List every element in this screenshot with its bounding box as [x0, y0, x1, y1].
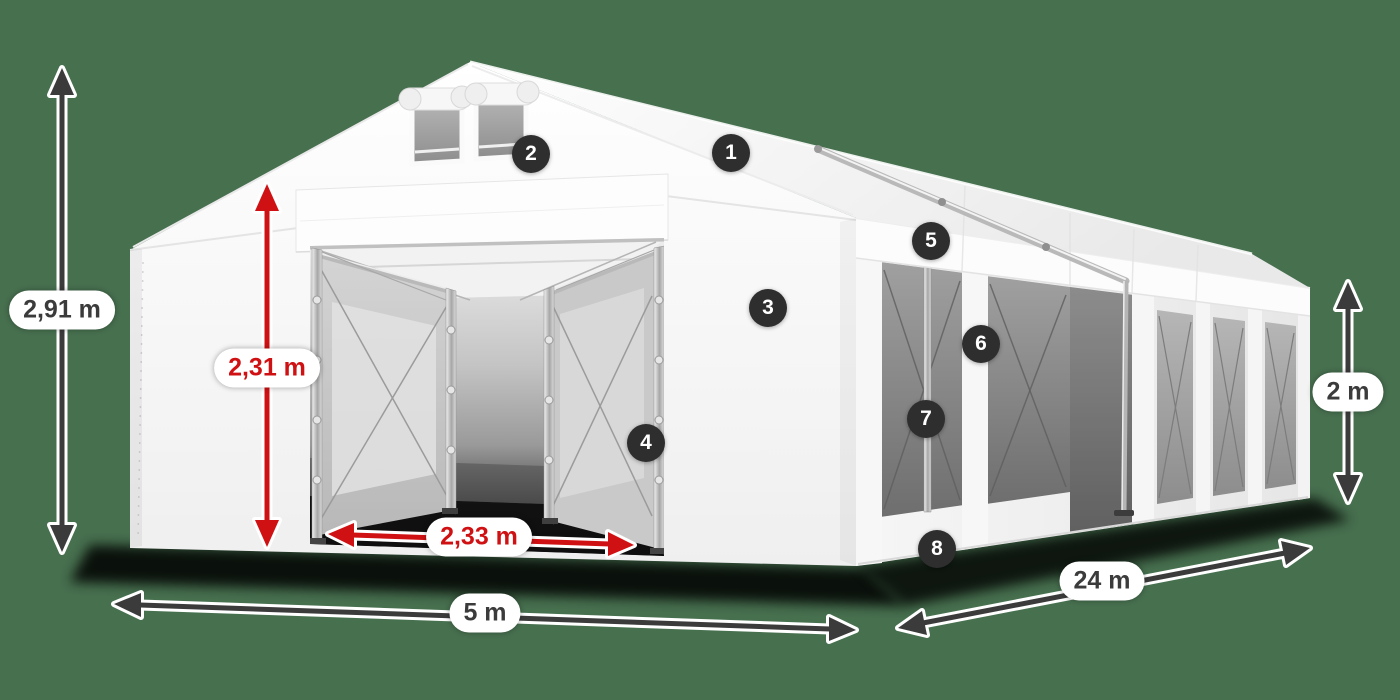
dimension-label-side-height: 2 m: [1312, 373, 1383, 412]
side-post: [1298, 314, 1310, 500]
hotspot-badge-4[interactable]: 4: [627, 424, 665, 462]
dimension-label-front-width: 5 m: [449, 594, 520, 633]
hotspot-badge-7[interactable]: 7: [907, 400, 945, 438]
dimension-label-side-length: 24 m: [1060, 562, 1145, 601]
gable-vent: [399, 86, 473, 164]
hotspot-badge-1[interactable]: 1: [712, 134, 750, 172]
side-post: [1132, 293, 1154, 524]
hotspot-badge-3[interactable]: 3: [749, 289, 787, 327]
side-post: [962, 271, 988, 550]
hotspot-badge-5[interactable]: 5: [912, 222, 950, 260]
side-strap: [1196, 301, 1210, 513]
side-window: [1265, 322, 1296, 489]
dimension-label-total-height: 2,91 m: [9, 291, 115, 330]
tent-illustration: [0, 0, 1400, 700]
side-open-bay: [986, 276, 1070, 504]
dimension-label-door-width: 2,33 m: [426, 518, 532, 557]
hotspot-badge-2[interactable]: 2: [512, 135, 550, 173]
side-post: [856, 218, 882, 566]
side-window: [1213, 317, 1245, 496]
side-window: [1157, 310, 1193, 504]
hotspot-badge-8[interactable]: 8: [918, 530, 956, 568]
side-strap: [1248, 308, 1262, 507]
hotspot-badge-6[interactable]: 6: [962, 325, 1000, 363]
open-door-left: [314, 252, 456, 536]
tent-diagram: 2,91 m 2,31 m 2,33 m 5 m 24 m 2 m 1 2 3 …: [0, 0, 1400, 700]
side-open-bay: [880, 262, 964, 517]
open-door-right: [544, 250, 656, 548]
front-doorway: [308, 238, 668, 556]
dimension-label-door-height: 2,31 m: [214, 349, 320, 388]
